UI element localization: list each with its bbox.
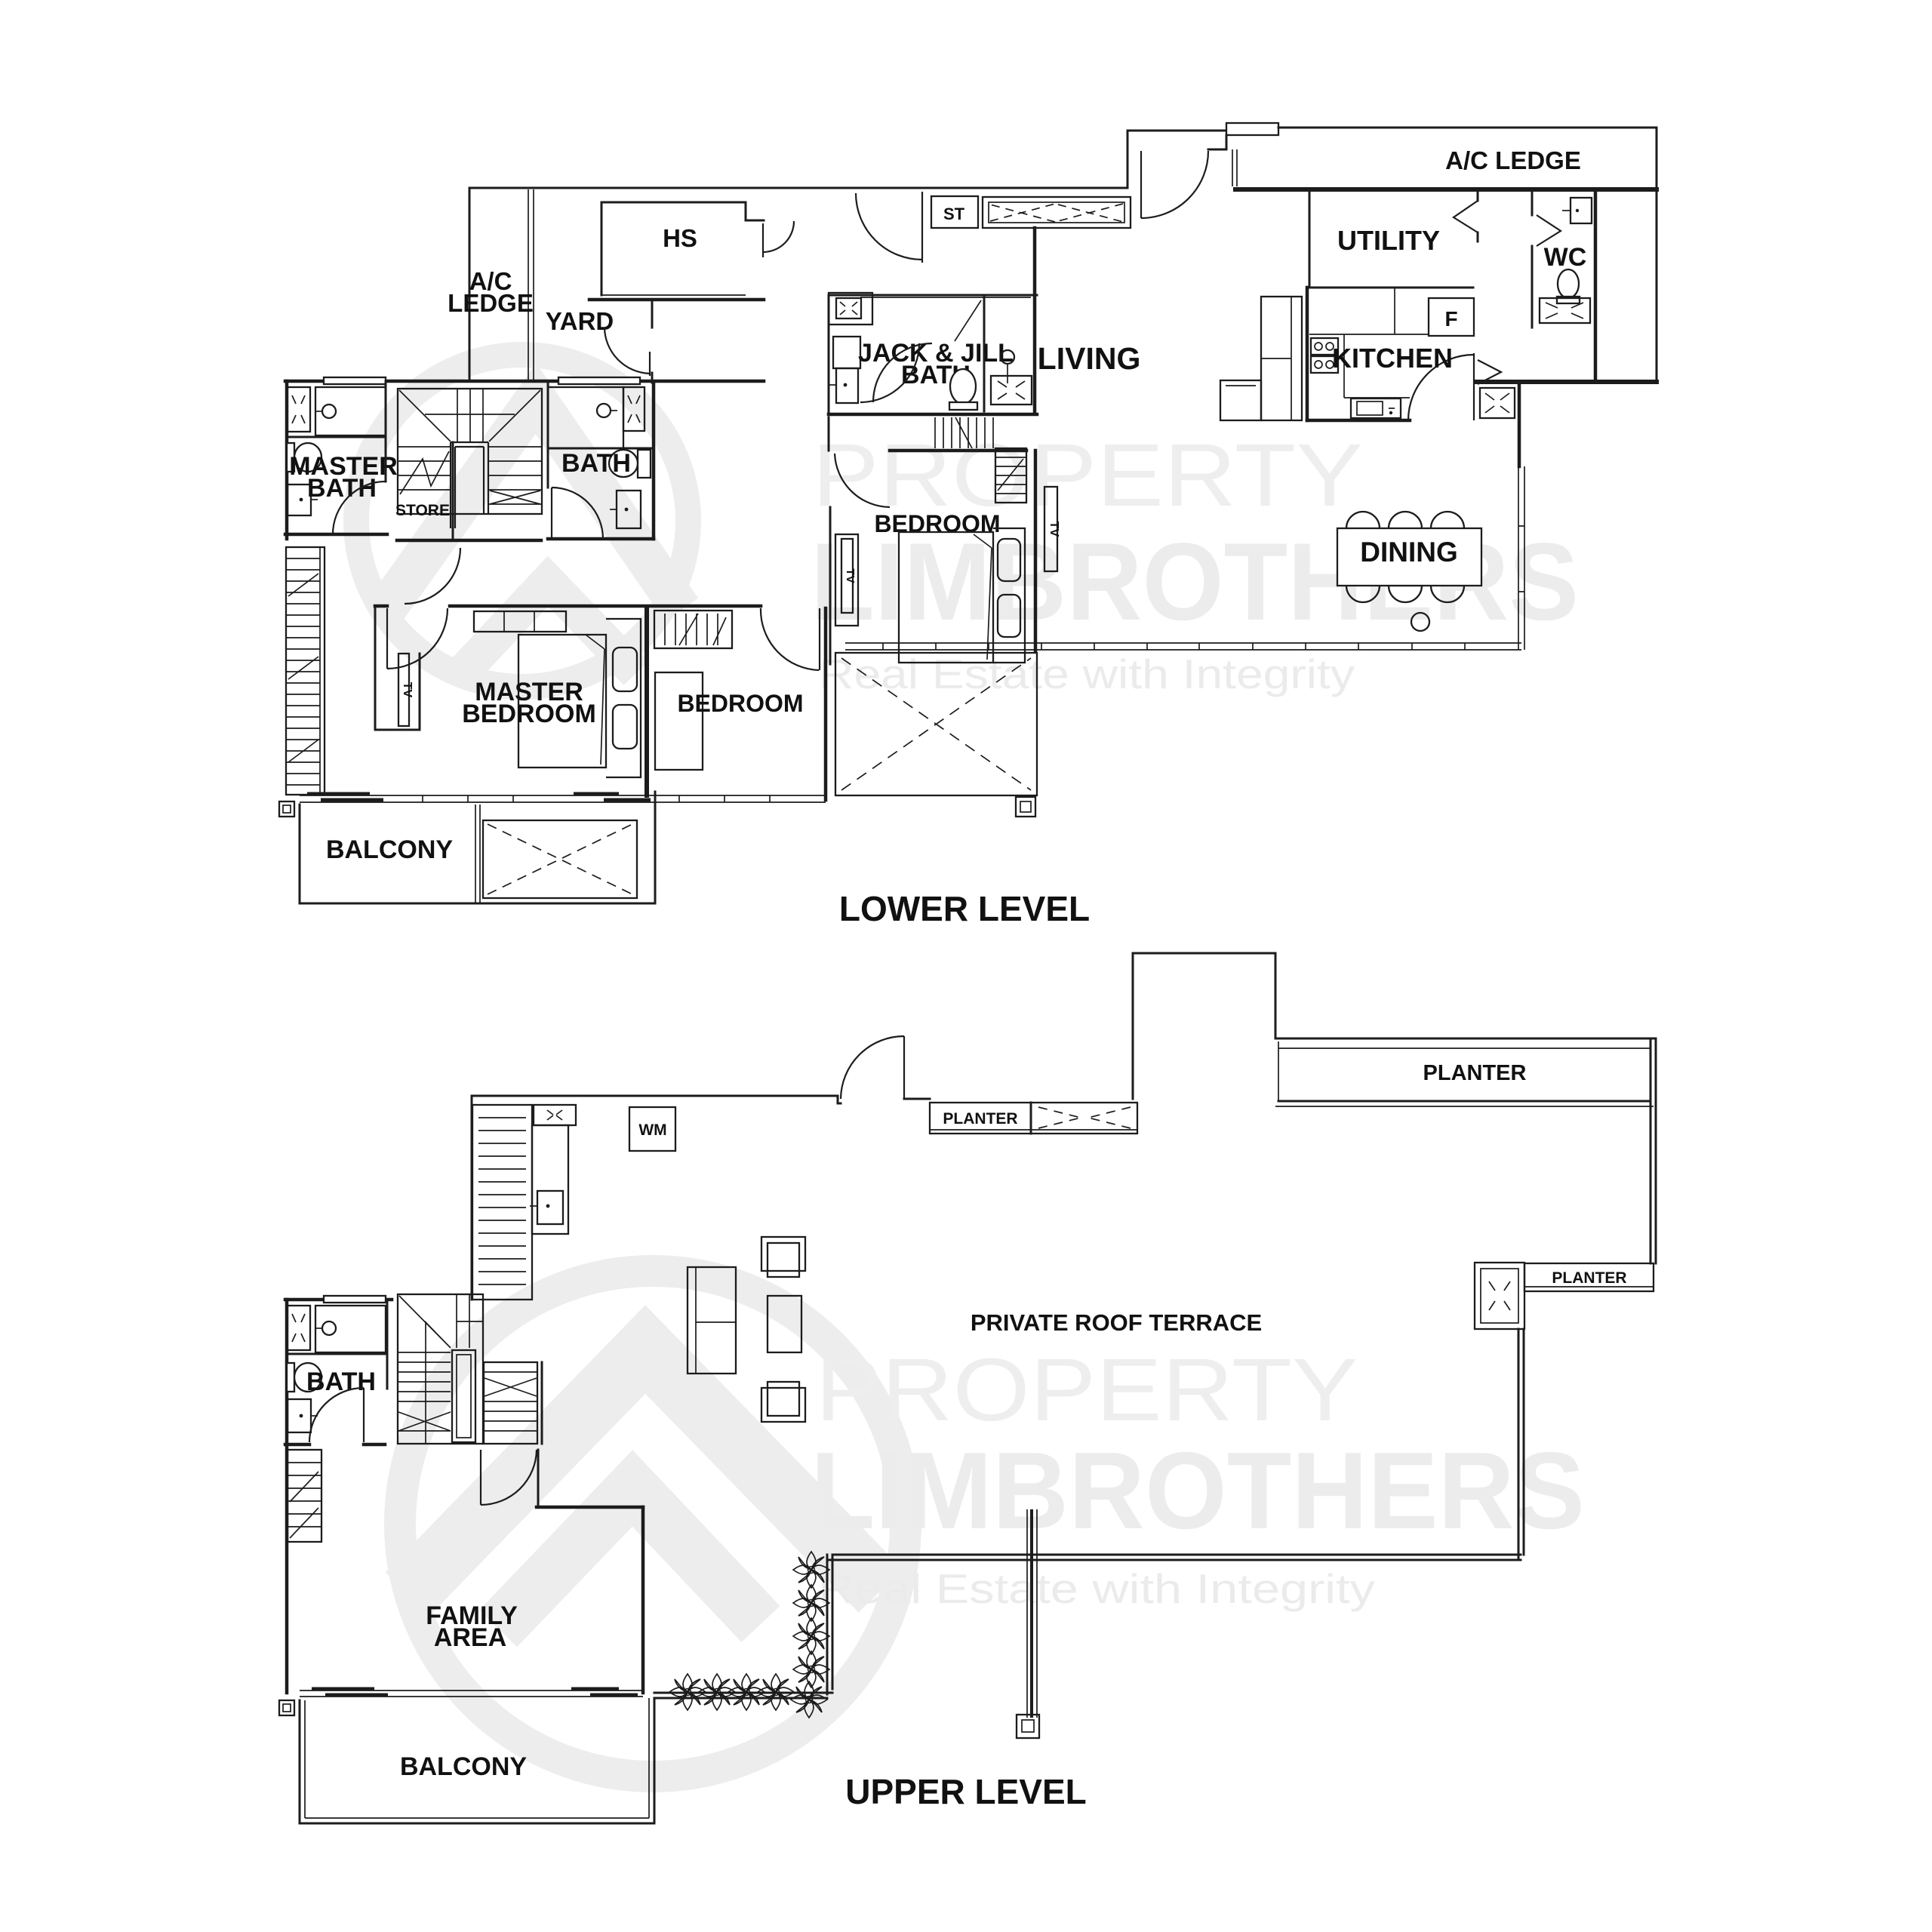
svg-text:LIVING: LIVING xyxy=(1038,341,1141,376)
svg-text:WC: WC xyxy=(1544,243,1587,272)
svg-text:WM: WM xyxy=(638,1121,666,1139)
svg-text:ST: ST xyxy=(943,205,965,223)
svg-text:Real Estate with Integrity: Real Estate with Integrity xyxy=(818,1565,1376,1612)
svg-text:PLANTER: PLANTER xyxy=(943,1110,1017,1128)
svg-text:YARD: YARD xyxy=(546,307,614,335)
svg-text:LOWER LEVEL: LOWER LEVEL xyxy=(839,889,1090,928)
svg-text:LIMBROTHERS: LIMBROTHERS xyxy=(811,1429,1585,1552)
svg-text:LEDGE: LEDGE xyxy=(448,289,534,317)
svg-text:BEDROOM: BEDROOM xyxy=(677,690,803,717)
svg-text:HS: HS xyxy=(663,224,697,252)
svg-text:UPPER LEVEL: UPPER LEVEL xyxy=(845,1772,1087,1811)
svg-text:PLANTER: PLANTER xyxy=(1552,1269,1626,1287)
svg-text:PRIVATE ROOF TERRACE: PRIVATE ROOF TERRACE xyxy=(971,1309,1262,1336)
svg-text:BATH: BATH xyxy=(561,449,631,478)
svg-text:DINING: DINING xyxy=(1360,537,1458,568)
svg-text:TV: TV xyxy=(401,682,414,698)
svg-text:A/C LEDGE: A/C LEDGE xyxy=(1445,146,1581,174)
svg-text:STORE: STORE xyxy=(395,502,450,519)
svg-text:BALCONY: BALCONY xyxy=(400,1752,527,1781)
svg-text:KITCHEN: KITCHEN xyxy=(1332,343,1453,374)
svg-text:BATH: BATH xyxy=(307,474,377,503)
svg-text:BEDROOM: BEDROOM xyxy=(462,700,596,728)
svg-text:BALCONY: BALCONY xyxy=(326,835,453,864)
svg-text:UTILITY: UTILITY xyxy=(1337,225,1440,256)
svg-text:TV: TV xyxy=(844,568,857,583)
svg-text:BEDROOM: BEDROOM xyxy=(874,510,1000,537)
svg-text:PLANTER: PLANTER xyxy=(1423,1061,1527,1085)
svg-text:F: F xyxy=(1444,307,1457,331)
svg-text:AREA: AREA xyxy=(434,1623,506,1652)
svg-text:TV: TV xyxy=(1048,521,1060,537)
svg-text:PROPERTY: PROPERTY xyxy=(816,1340,1358,1440)
